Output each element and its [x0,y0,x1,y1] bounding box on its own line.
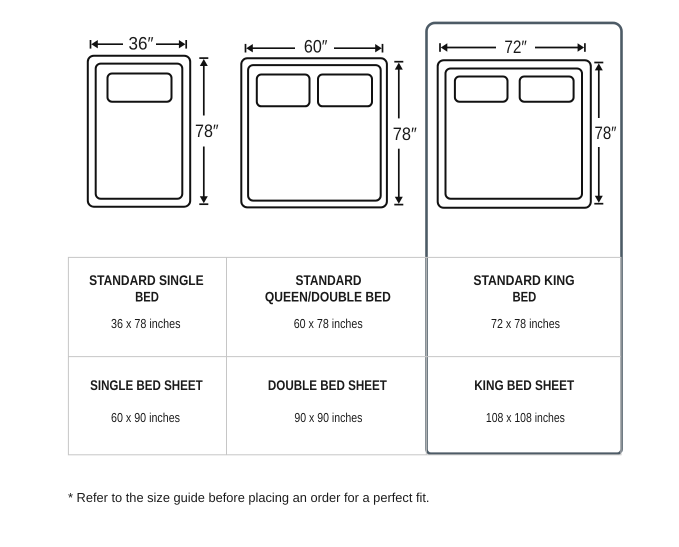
svg-text:BED: BED [135,289,159,305]
svg-text:78″: 78″ [595,123,618,143]
svg-text:KING BED SHEET: KING BED SHEET [474,377,574,393]
svg-text:STANDARD KING: STANDARD KING [473,272,574,288]
svg-text:* Refer to the size guide befo: * Refer to the size guide before placing… [68,490,430,505]
svg-text:SINGLE BED SHEET: SINGLE BED SHEET [90,377,203,393]
svg-text:60 x 78 inches: 60 x 78 inches [294,316,363,331]
svg-text:STANDARD: STANDARD [296,272,362,288]
svg-text:78″: 78″ [195,121,219,141]
svg-text:108 x 108 inches: 108 x 108 inches [486,410,565,425]
svg-text:36″: 36″ [129,34,155,54]
svg-text:DOUBLE BED SHEET: DOUBLE BED SHEET [268,377,387,393]
svg-text:STANDARD SINGLE: STANDARD SINGLE [89,272,204,288]
svg-text:60 x 90 inches: 60 x 90 inches [111,410,180,425]
svg-text:60″: 60″ [304,37,328,57]
svg-text:72 x 78 inches: 72 x 78 inches [491,316,560,331]
svg-text:QUEEN/DOUBLE BED: QUEEN/DOUBLE BED [265,289,391,305]
svg-text:90 x 90 inches: 90 x 90 inches [294,410,362,425]
svg-text:72″: 72″ [504,37,527,57]
svg-text:36 x 78 inches: 36 x 78 inches [111,316,181,331]
svg-text:78″: 78″ [393,124,418,144]
svg-text:BED: BED [513,289,537,305]
